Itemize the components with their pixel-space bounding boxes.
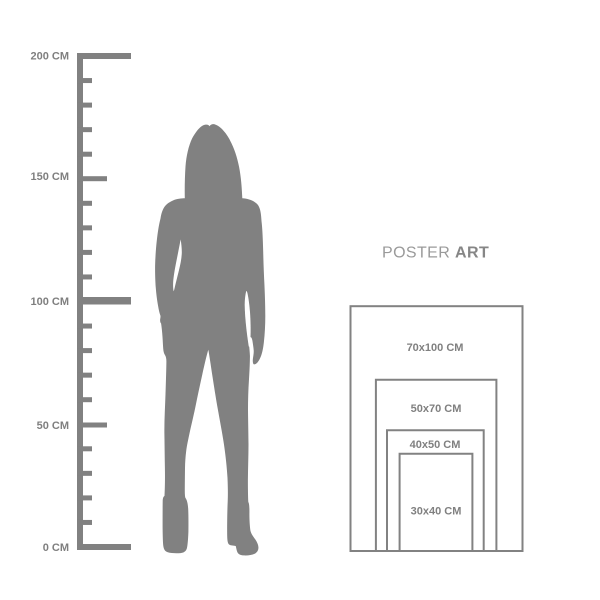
svg-text:0 CM: 0 CM (43, 542, 69, 554)
svg-text:50 CM: 50 CM (37, 420, 69, 432)
svg-text:40x50 CM: 40x50 CM (410, 439, 461, 451)
svg-text:70x100 CM: 70x100 CM (407, 342, 464, 354)
svg-text:100 CM: 100 CM (30, 296, 69, 308)
svg-text:POSTER ART: POSTER ART (382, 245, 489, 262)
svg-text:150 CM: 150 CM (30, 171, 69, 183)
svg-text:50x70 CM: 50x70 CM (411, 403, 462, 415)
svg-text:200 CM: 200 CM (30, 51, 69, 63)
svg-text:30x40 CM: 30x40 CM (411, 505, 462, 517)
